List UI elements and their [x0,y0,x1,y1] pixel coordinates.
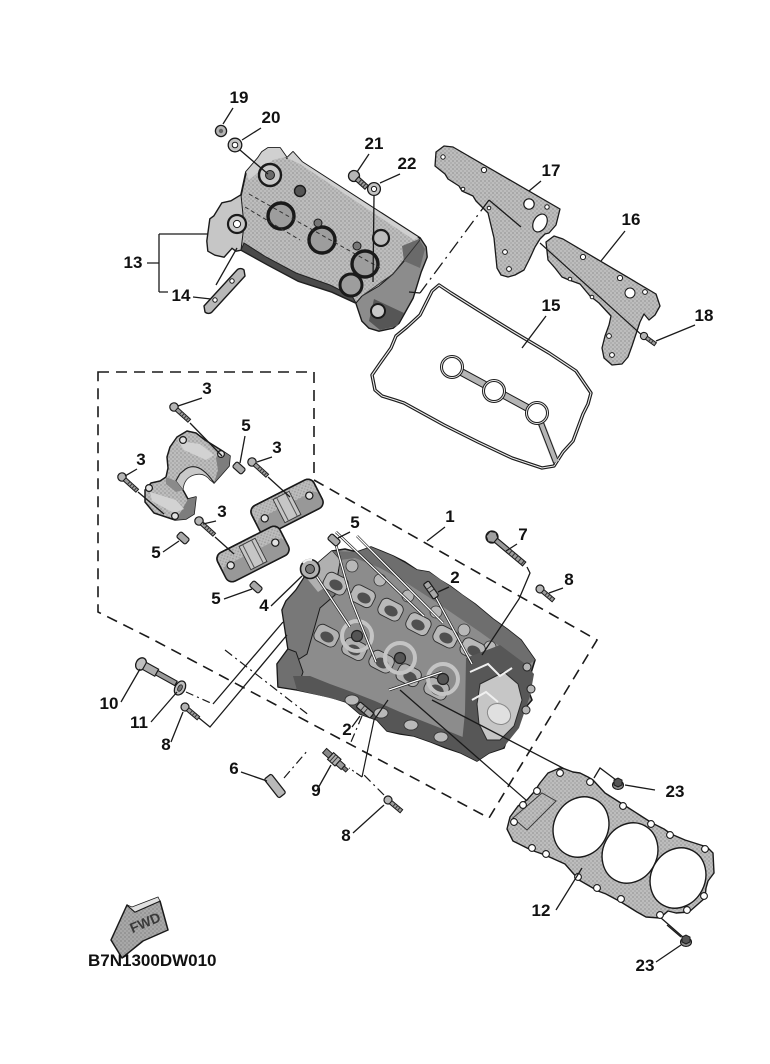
svg-text:4: 4 [259,596,269,615]
svg-text:5: 5 [350,513,359,532]
svg-text:23: 23 [666,782,685,801]
svg-text:8: 8 [341,826,350,845]
svg-text:16: 16 [622,210,641,229]
svg-text:6: 6 [229,759,238,778]
svg-text:7: 7 [518,525,527,544]
svg-text:20: 20 [262,108,281,127]
svg-text:15: 15 [542,296,561,315]
svg-text:5: 5 [241,416,250,435]
svg-text:17: 17 [542,161,561,180]
svg-text:B7N1300DW010: B7N1300DW010 [88,951,217,970]
svg-text:3: 3 [136,450,145,469]
svg-text:2: 2 [342,720,351,739]
svg-text:1: 1 [445,507,454,526]
svg-text:11: 11 [130,713,148,732]
svg-text:22: 22 [398,154,417,173]
svg-text:10: 10 [100,694,119,713]
svg-text:21: 21 [365,134,384,153]
svg-text:12: 12 [532,901,551,920]
svg-text:23: 23 [636,956,655,975]
svg-text:8: 8 [161,735,170,754]
svg-text:14: 14 [172,286,191,305]
svg-text:3: 3 [217,502,226,521]
svg-text:2: 2 [450,568,459,587]
svg-text:9: 9 [311,781,320,800]
svg-text:5: 5 [211,589,220,608]
svg-text:19: 19 [230,88,249,107]
svg-text:3: 3 [202,379,211,398]
svg-text:5: 5 [151,543,160,562]
svg-text:18: 18 [695,306,714,325]
svg-text:8: 8 [564,570,573,589]
svg-text:3: 3 [272,438,281,457]
svg-text:13: 13 [124,253,143,272]
